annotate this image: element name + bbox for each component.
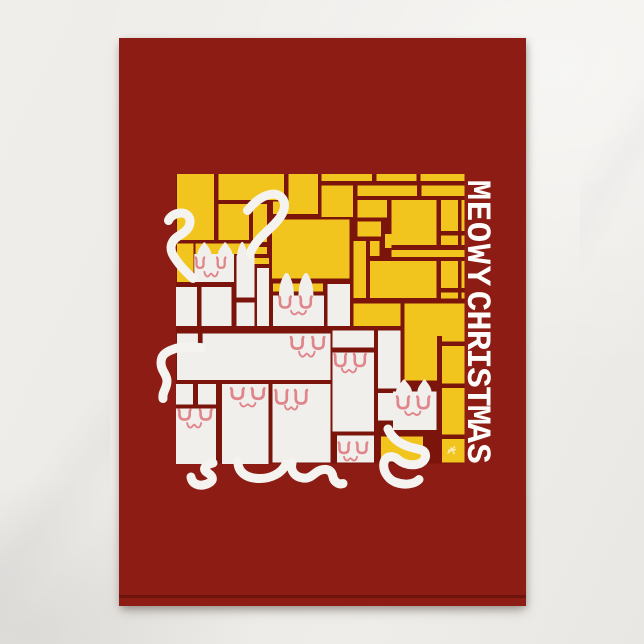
svg-text:A: A — [457, 423, 495, 444]
svg-text:I: I — [457, 348, 495, 368]
svg-text:S: S — [457, 367, 495, 387]
svg-text:Y: Y — [457, 266, 495, 287]
svg-text:S: S — [457, 443, 495, 463]
svg-text:E: E — [457, 201, 495, 221]
svg-text:O: O — [457, 222, 495, 242]
svg-text:T: T — [457, 386, 495, 406]
svg-text:C: C — [457, 291, 495, 311]
svg-text:H: H — [457, 310, 495, 330]
svg-text:W: W — [457, 244, 495, 265]
svg-text:M: M — [457, 180, 495, 200]
